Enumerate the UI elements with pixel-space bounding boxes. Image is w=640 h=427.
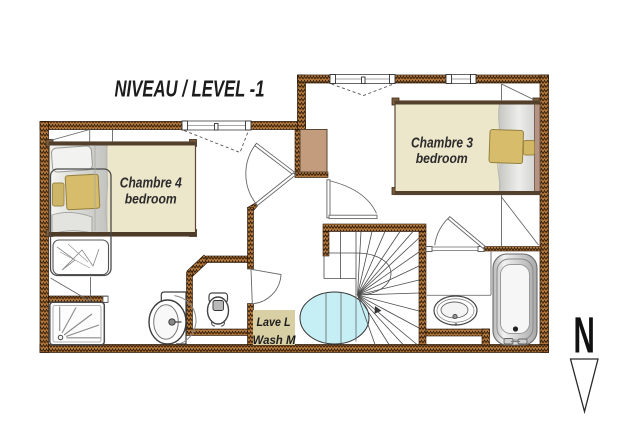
svg-text:bedroom: bedroom: [125, 191, 177, 207]
svg-text:N: N: [574, 306, 595, 363]
svg-text:Lave L: Lave L: [257, 317, 291, 329]
svg-text:Wash M: Wash M: [253, 335, 296, 347]
svg-text:NIVEAU / LEVEL -1: NIVEAU / LEVEL -1: [115, 76, 265, 102]
svg-text:Chambre 3: Chambre 3: [411, 135, 474, 152]
svg-text:Chambre 4: Chambre 4: [120, 175, 183, 192]
svg-text:bedroom: bedroom: [416, 150, 468, 166]
